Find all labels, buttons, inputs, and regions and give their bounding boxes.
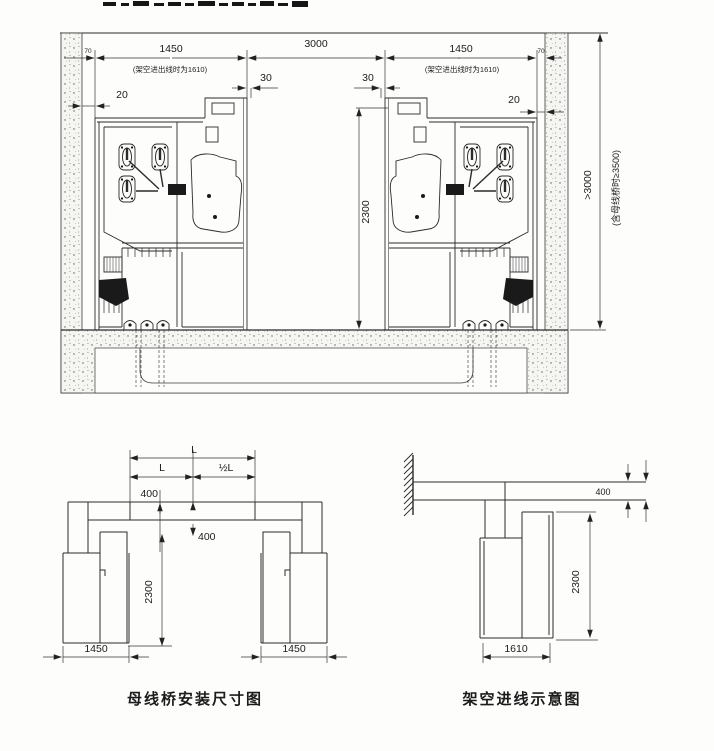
cable-trench [95,348,527,393]
dim-1450-bridge-right: 1450 [282,643,306,655]
wall-hatching [404,453,413,516]
dim-1450-right: 1450 [449,43,473,55]
dim-3000-aisle: 3000 [304,38,328,50]
switchgear-installation-drawing: 70 1450 (架空进出线时为1610) 3000 1450 (架空进出线时为… [0,0,714,751]
dim-30-right: 30 [362,72,374,84]
dim-half-L: ½L [219,462,234,474]
dim-2300-cabinet: 2300 [360,200,372,224]
circuit-breaker [191,154,242,232]
bridge-dimension-lines [43,450,347,663]
dim-1450-left: 1450 [159,43,183,55]
dim-room-height: >3000 [582,170,594,200]
technical-drawing-page: 70 1450 (架空进出线时为1610) 3000 1450 (架空进出线时为… [0,0,714,751]
dim-2300-bridge: 2300 [143,580,155,604]
dim-400-top: 400 [140,488,158,500]
busbar-bridge-figure: L L ½L 400 400 2300 1450 1450 母线桥安装尺寸图 [43,444,347,708]
dim-L-left: L [159,462,165,474]
dim-70-right: 70 [537,48,545,55]
dim-400-bottom: 400 [198,531,216,543]
cable-terminal [99,278,129,306]
overhead-figure-caption: 架空进线示意图 [461,690,581,708]
bushing-block [168,184,186,195]
dim-1610-depth: 1610 [504,643,528,655]
note-overhead-right: (架空进出线时为1610) [425,64,500,74]
note-overhead-left: (架空进出线时为1610) [133,64,208,74]
dim-70-left: 70 [84,48,92,55]
dim-1450-bridge-left: 1450 [84,643,108,655]
dim-400-duct: 400 [595,487,610,497]
dim-20-right: 20 [508,94,520,106]
overhead-inlet-figure: 400 2300 1610 架空进线示意图 [404,453,646,708]
bridge-outline [63,502,327,643]
dim-L-total: L [191,444,197,456]
bridge-figure-caption: 母线桥安装尺寸图 [127,690,263,708]
room-section-figure: 70 1450 (架空进出线时为1610) 3000 1450 (架空进出线时为… [60,33,621,393]
dim-30-left: 30 [260,72,272,84]
clipped-title-strokes [103,1,308,7]
note-room-height: (含母线桥时≥3500) [610,150,621,226]
dim-20-left: 20 [116,89,128,101]
overhead-dimension-lines [483,460,646,663]
dim-2300-overhead: 2300 [570,570,582,594]
overhead-outline [404,453,646,638]
